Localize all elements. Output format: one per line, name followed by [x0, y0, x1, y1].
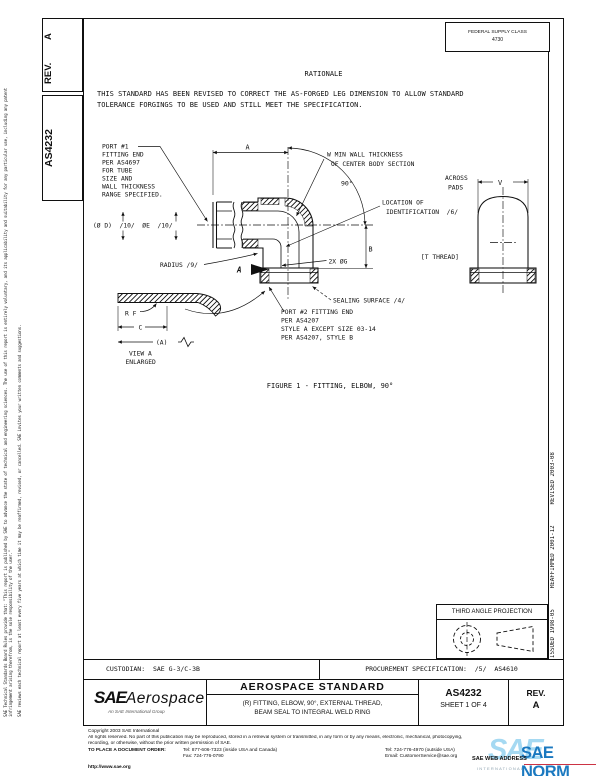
standard-title-line1: (R) FITTING, ELBOW, 90°, EXTERNAL THREAD… [207, 700, 418, 707]
left-disclaimer-1: SAE Technical Standards Board Rules prov… [3, 75, 15, 717]
wall-note: W MIN WALL THICKNESS [327, 152, 403, 159]
title-doc-number: AS4232 [419, 688, 508, 699]
doc-number-cell: AS4232 SHEET 1 OF 4 [419, 680, 509, 725]
dim-b-label: B [369, 246, 373, 254]
centerlines [197, 147, 516, 301]
figure-drawing: PORT #1 FITTING END PER AS4697 FOR TUBE … [85, 125, 555, 425]
doc-number-vertical: AS4232 [43, 96, 82, 200]
title-rev-label: REV. [509, 688, 563, 698]
figure-caption: FIGURE 1 - FITTING, ELBOW, 90° [180, 382, 480, 390]
watermark-norm: SAE NORM [521, 744, 600, 776]
rev-box: REV. A [42, 18, 83, 92]
sealing-label: SEALING SURFACE /4/ [333, 298, 405, 305]
title-rev-value: A [509, 700, 563, 711]
holes-label: 2X ØG [329, 258, 348, 266]
rf-label: R F [125, 311, 137, 318]
view-arrow-label: A [236, 266, 242, 275]
standard-kind: AEROSPACE STANDARD [207, 680, 418, 695]
standard-sheet: SAE Technical Standards Board Rules prov… [0, 0, 600, 776]
across-pads-label: ACROSS [445, 175, 468, 182]
rationale-line1: THIS STANDARD HAS BEEN REVISED TO CORREC… [97, 89, 464, 100]
sae-logo-subtitle: An SAE International Group [108, 709, 206, 714]
port1-label: PORT #1 [102, 144, 129, 151]
dim-c-label: C [139, 325, 143, 332]
fsc-box: FEDERAL SUPPLY CLASS 4730 [445, 22, 550, 52]
rationale-line2: TOLERANCE FORGINGS TO BE USED AND STILL … [97, 100, 464, 111]
footer-email: Email: CustomerService@sae.org [385, 754, 457, 759]
svg-text:PADS: PADS [448, 185, 463, 192]
svg-text:FITTING END: FITTING END [102, 152, 144, 159]
fsc-value: 4730 [446, 37, 549, 43]
title-block: SAEAerospace An SAE International Group … [83, 679, 564, 726]
dim-a-ref-label: (A) [156, 340, 167, 347]
left-disclaimer-2: SAE reviews each technical report at lea… [17, 75, 29, 717]
footer-rights-2: recording, or otherwise, without the pri… [88, 741, 231, 746]
standard-title-line2: BEAM SEAL TO INTEGRAL WELD RING [207, 709, 418, 716]
rev-box-value: A [43, 19, 82, 55]
custodian-cell: CUSTODIAN: SAE G-3/C-3B [84, 660, 320, 679]
projection-box: THIRD ANGLE PROJECTION [436, 604, 548, 659]
watermark-sub: INTERNATIONAL [477, 766, 524, 771]
footer-tel-2: Tel: 724-776-4970 (outside USA) [385, 748, 455, 753]
svg-text:IDENTIFICATION /6/: IDENTIFICATION /6/ [386, 209, 458, 216]
sae-logo-cell: SAEAerospace An SAE International Group [84, 680, 207, 725]
svg-text:FOR TUBE: FOR TUBE [102, 168, 133, 175]
svg-text:ENLARGED: ENLARGED [126, 359, 157, 366]
fsc-label: FEDERAL SUPPLY CLASS [446, 30, 549, 35]
svg-text:SIZE AND: SIZE AND [102, 176, 133, 183]
svg-text:WALL THICKNESS: WALL THICKNESS [102, 184, 155, 191]
footer-web-url: http://www.sae.org [88, 765, 131, 770]
svg-text:OF CENTER BODY SECTION: OF CENTER BODY SECTION [331, 161, 415, 168]
rev-cell: REV. A [509, 680, 563, 725]
sae-logo-aerospace: Aerospace [126, 690, 205, 707]
title-sheet: SHEET 1 OF 4 [419, 702, 508, 709]
radius-label: RADIUS /9/ [160, 262, 198, 269]
rationale-heading: RATIONALE [83, 70, 564, 78]
custodian-row: CUSTODIAN: SAE G-3/C-3B PROCUREMENT SPEC… [83, 659, 564, 680]
thread-label: [T THREAD] [421, 254, 459, 261]
dim-a-label: A [246, 144, 250, 152]
rationale-body: THIS STANDARD HAS BEEN REVISED TO CORREC… [97, 89, 464, 110]
footer-fax: Fax: 724-776-0790 [183, 754, 224, 759]
procurement-cell: PROCUREMENT SPECIFICATION: /5/ AS4610 [320, 660, 563, 679]
svg-text:STYLE A EXCEPT SIZE 03-14: STYLE A EXCEPT SIZE 03-14 [281, 326, 376, 333]
view-a-label: VIEW A [129, 351, 152, 358]
standard-title-cell: AEROSPACE STANDARD (R) FITTING, ELBOW, 9… [207, 680, 419, 725]
dim-v-label: V [498, 179, 503, 187]
identification-note: LOCATION OF [382, 200, 424, 207]
footer-copyright: Copyright 2003 SAE International [88, 729, 159, 734]
svg-text:PER AS4207, STYLE B: PER AS4207, STYLE B [281, 335, 353, 342]
svg-text:PER AS4697: PER AS4697 [102, 160, 140, 167]
rev-box-label: REV. [43, 55, 82, 91]
diameter-note: (Ø D) /10/ ØE /10/ [93, 222, 173, 230]
watermark-underline [524, 764, 596, 766]
port2-label: PORT #2 FITTING END [281, 309, 353, 316]
figure-labels: PORT #1 FITTING END PER AS4697 FOR TUBE … [93, 144, 503, 367]
footer-web-label: SAE WEB ADDRESS [472, 756, 527, 762]
doc-number-box: AS4232 [42, 95, 83, 201]
footer-order-label: TO PLACE A DOCUMENT ORDER: [88, 748, 166, 753]
third-angle-symbol [437, 620, 545, 658]
svg-text:RANGE SPECIFIED.: RANGE SPECIFIED. [102, 192, 163, 199]
svg-text:PER AS4207: PER AS4207 [281, 318, 319, 325]
angle-label: 90° [341, 180, 353, 188]
footer-tel-1: Tel: 877-606-7323 (inside USA and Canada… [183, 748, 277, 753]
projection-heading: THIRD ANGLE PROJECTION [437, 605, 547, 620]
sae-logo: SAE [94, 688, 126, 707]
